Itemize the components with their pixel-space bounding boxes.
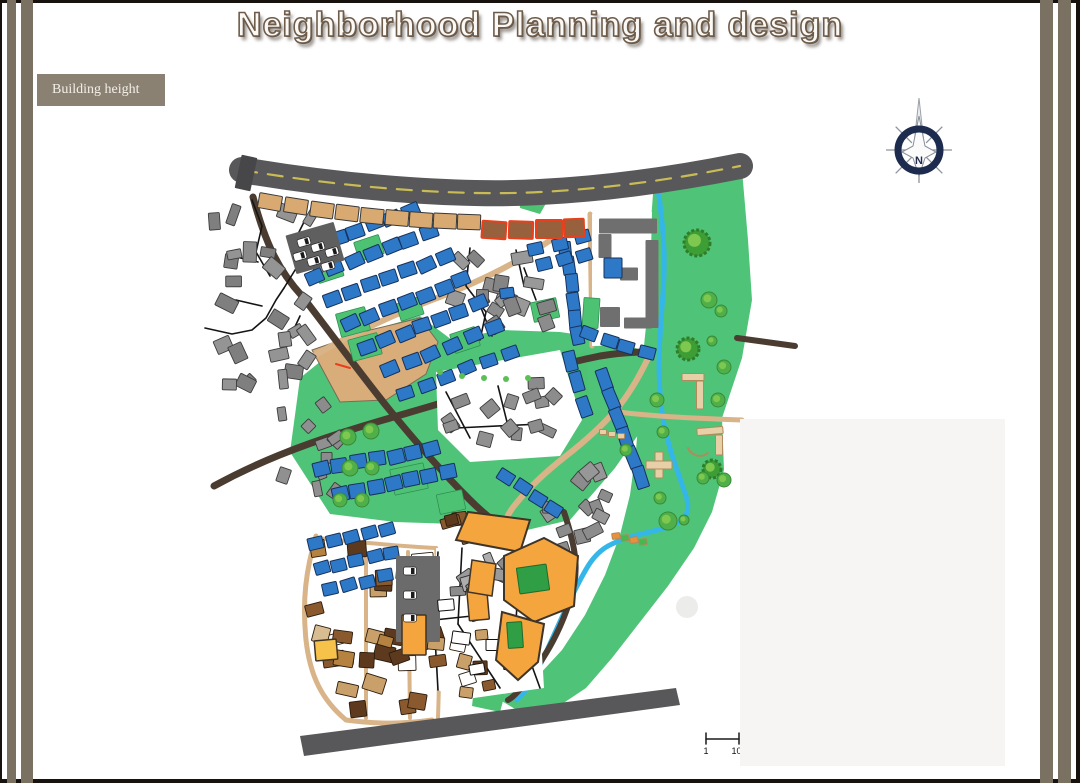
right-stripe-outer [1058, 0, 1071, 783]
right-stripe-inner [1040, 0, 1053, 783]
page-title: Neighborhood Planning and design [0, 2, 1080, 48]
left-stripe-inner [21, 0, 33, 783]
right-border [1076, 0, 1080, 783]
left-stripe-outer [7, 0, 16, 783]
slide-page: N1100 Neighborhood Planning and design B… [0, 0, 1080, 783]
bottom-border [0, 779, 1080, 783]
scale-label-left: 1 [703, 746, 708, 756]
map-cover-panel [740, 419, 1005, 766]
building-height-label: Building height [37, 74, 165, 106]
left-border [0, 0, 2, 783]
compass-north-label: N [915, 155, 923, 167]
